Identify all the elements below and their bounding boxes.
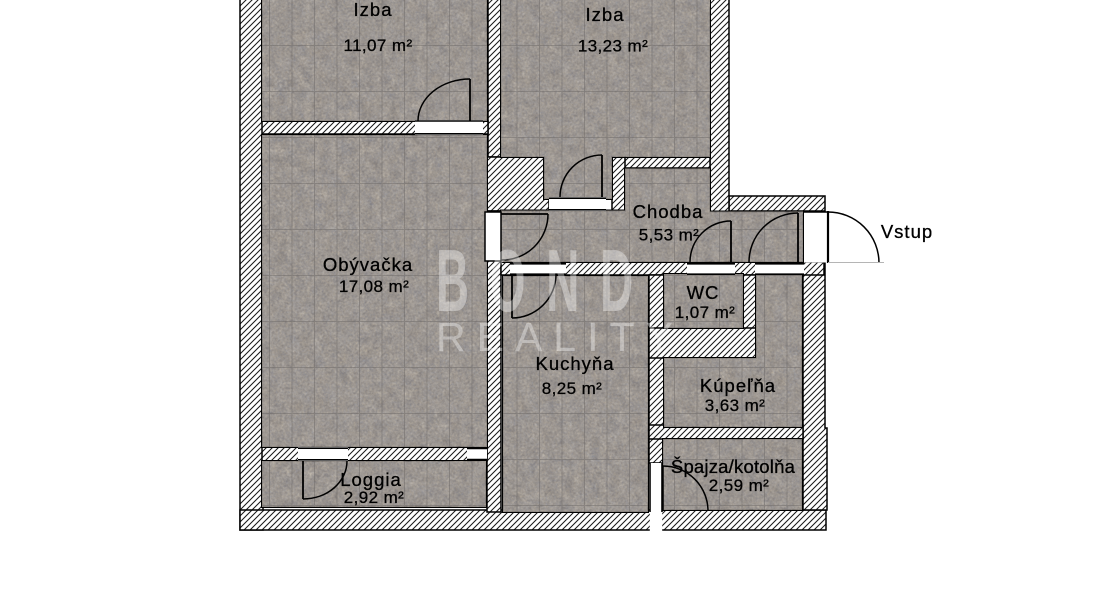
svg-text:8,25 m²: 8,25 m² <box>542 379 602 398</box>
svg-text:2,92 m²: 2,92 m² <box>344 488 404 507</box>
svg-text:WC: WC <box>687 282 720 303</box>
svg-text:3,63 m²: 3,63 m² <box>705 396 765 415</box>
svg-text:2,59 m²: 2,59 m² <box>709 476 769 495</box>
svg-text:REALITY: REALITY <box>436 314 684 360</box>
svg-text:17,08 m²: 17,08 m² <box>339 277 409 296</box>
svg-text:Izba: Izba <box>354 0 393 20</box>
svg-text:13,23 m²: 13,23 m² <box>578 37 648 56</box>
svg-text:11,07 m²: 11,07 m² <box>343 36 412 55</box>
svg-text:Izba: Izba <box>586 4 625 25</box>
svg-text:Loggia: Loggia <box>340 469 402 490</box>
svg-text:Kúpeľňa: Kúpeľňa <box>700 375 776 396</box>
svg-text:Vstup: Vstup <box>881 221 933 242</box>
svg-text:Chodba: Chodba <box>633 201 704 222</box>
svg-text:Obývačka: Obývačka <box>323 254 413 275</box>
svg-text:Špajza/kotolňa: Špajza/kotolňa <box>671 456 796 477</box>
